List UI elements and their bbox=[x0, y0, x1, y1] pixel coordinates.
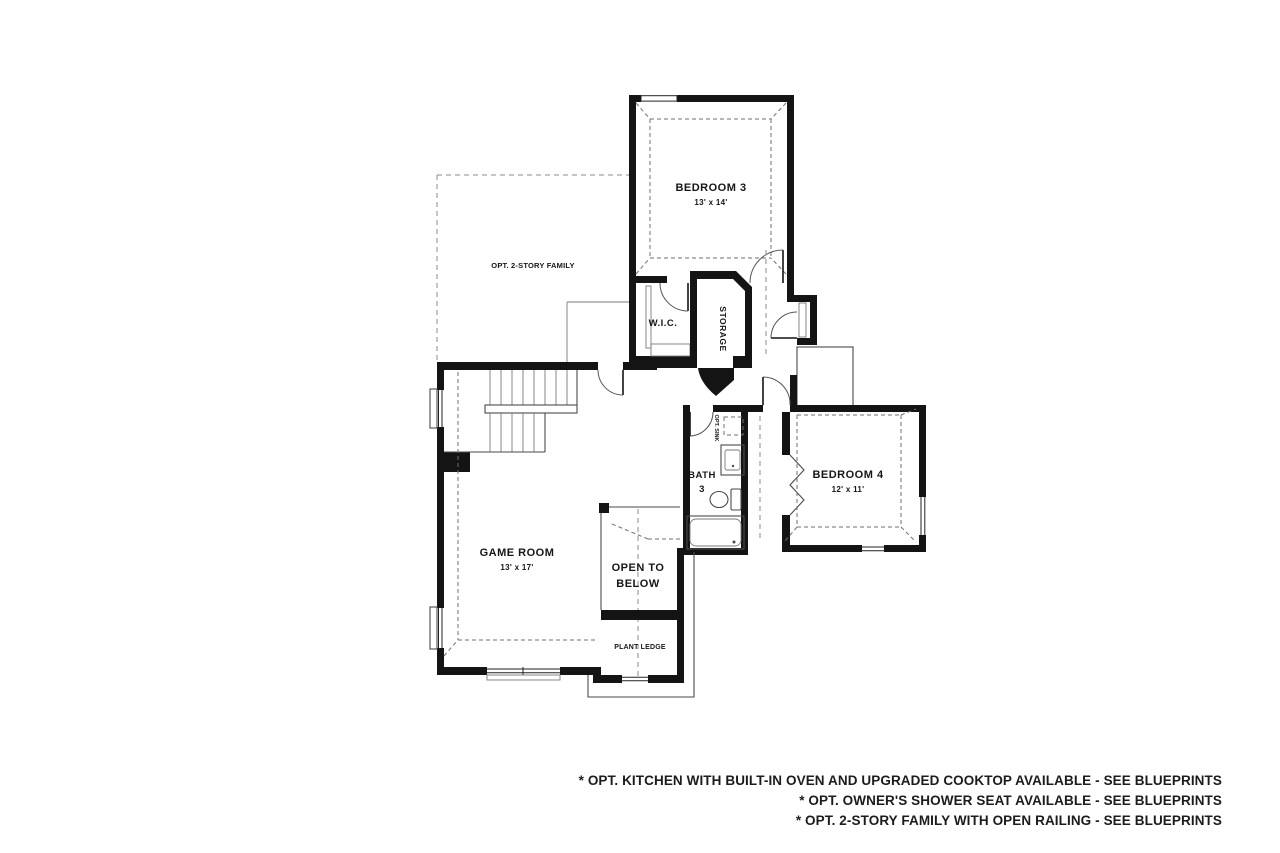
room-wic: W.I.C. bbox=[629, 283, 697, 368]
footer-note-3: * OPT. 2-STORY FAMILY WITH OPEN RAILING … bbox=[579, 811, 1222, 831]
footer-note-2: * OPT. OWNER'S SHOWER SEAT AVAILABLE - S… bbox=[579, 791, 1222, 811]
storage-label: STORAGE bbox=[718, 306, 728, 351]
storage-door bbox=[698, 368, 734, 396]
room-bedroom-4: BEDROOM 4 12' x 11' bbox=[782, 405, 926, 552]
room-bedroom-3: BEDROOM 3 13' x 14' bbox=[629, 95, 794, 302]
opt-family-label: OPT. 2-STORY FAMILY bbox=[491, 261, 574, 270]
toilet-icon bbox=[710, 489, 741, 510]
stairs bbox=[444, 370, 577, 452]
room-bath-3: OPT. SINK BATH 3 bbox=[683, 405, 748, 555]
opt-2-story-family: OPT. 2-STORY FAMILY bbox=[437, 175, 629, 362]
plant-ledge-label: PLANT LEDGE bbox=[614, 644, 666, 651]
footer-notes: * OPT. KITCHEN WITH BUILT-IN OVEN AND UP… bbox=[579, 771, 1222, 831]
room-storage: STORAGE bbox=[690, 271, 752, 396]
room-game-room: GAME ROOM 13' x 17' bbox=[430, 362, 657, 683]
floor-plan-drawing: BEDROOM 3 13' x 14' W.I.C. STORAGE bbox=[0, 0, 1280, 853]
game-room-dims: 13' x 17' bbox=[500, 563, 533, 572]
bedroom-3-label: BEDROOM 3 bbox=[675, 182, 746, 194]
game-room-label: GAME ROOM bbox=[480, 547, 555, 559]
hallway bbox=[713, 250, 926, 412]
open-to-below-label-2: BELOW bbox=[616, 578, 660, 590]
bedroom-3-dims: 13' x 14' bbox=[694, 198, 727, 207]
open-to-below-label-1: OPEN TO bbox=[612, 562, 665, 574]
opt-sink-label: OPT. SINK bbox=[713, 415, 719, 442]
bedroom-4-dims: 12' x 11' bbox=[832, 485, 865, 494]
bath-3-label: BATH bbox=[688, 470, 716, 481]
bedroom-4-label: BEDROOM 4 bbox=[812, 469, 884, 481]
footer-note-1: * OPT. KITCHEN WITH BUILT-IN OVEN AND UP… bbox=[579, 771, 1222, 791]
bath-3-number: 3 bbox=[699, 484, 705, 495]
sink-icon bbox=[721, 445, 744, 475]
opt-sink-outline bbox=[724, 417, 743, 435]
bathtub-icon bbox=[687, 516, 744, 549]
wic-label: W.I.C. bbox=[649, 318, 678, 329]
floor-plan-page: BEDROOM 3 13' x 14' W.I.C. STORAGE bbox=[0, 0, 1280, 853]
